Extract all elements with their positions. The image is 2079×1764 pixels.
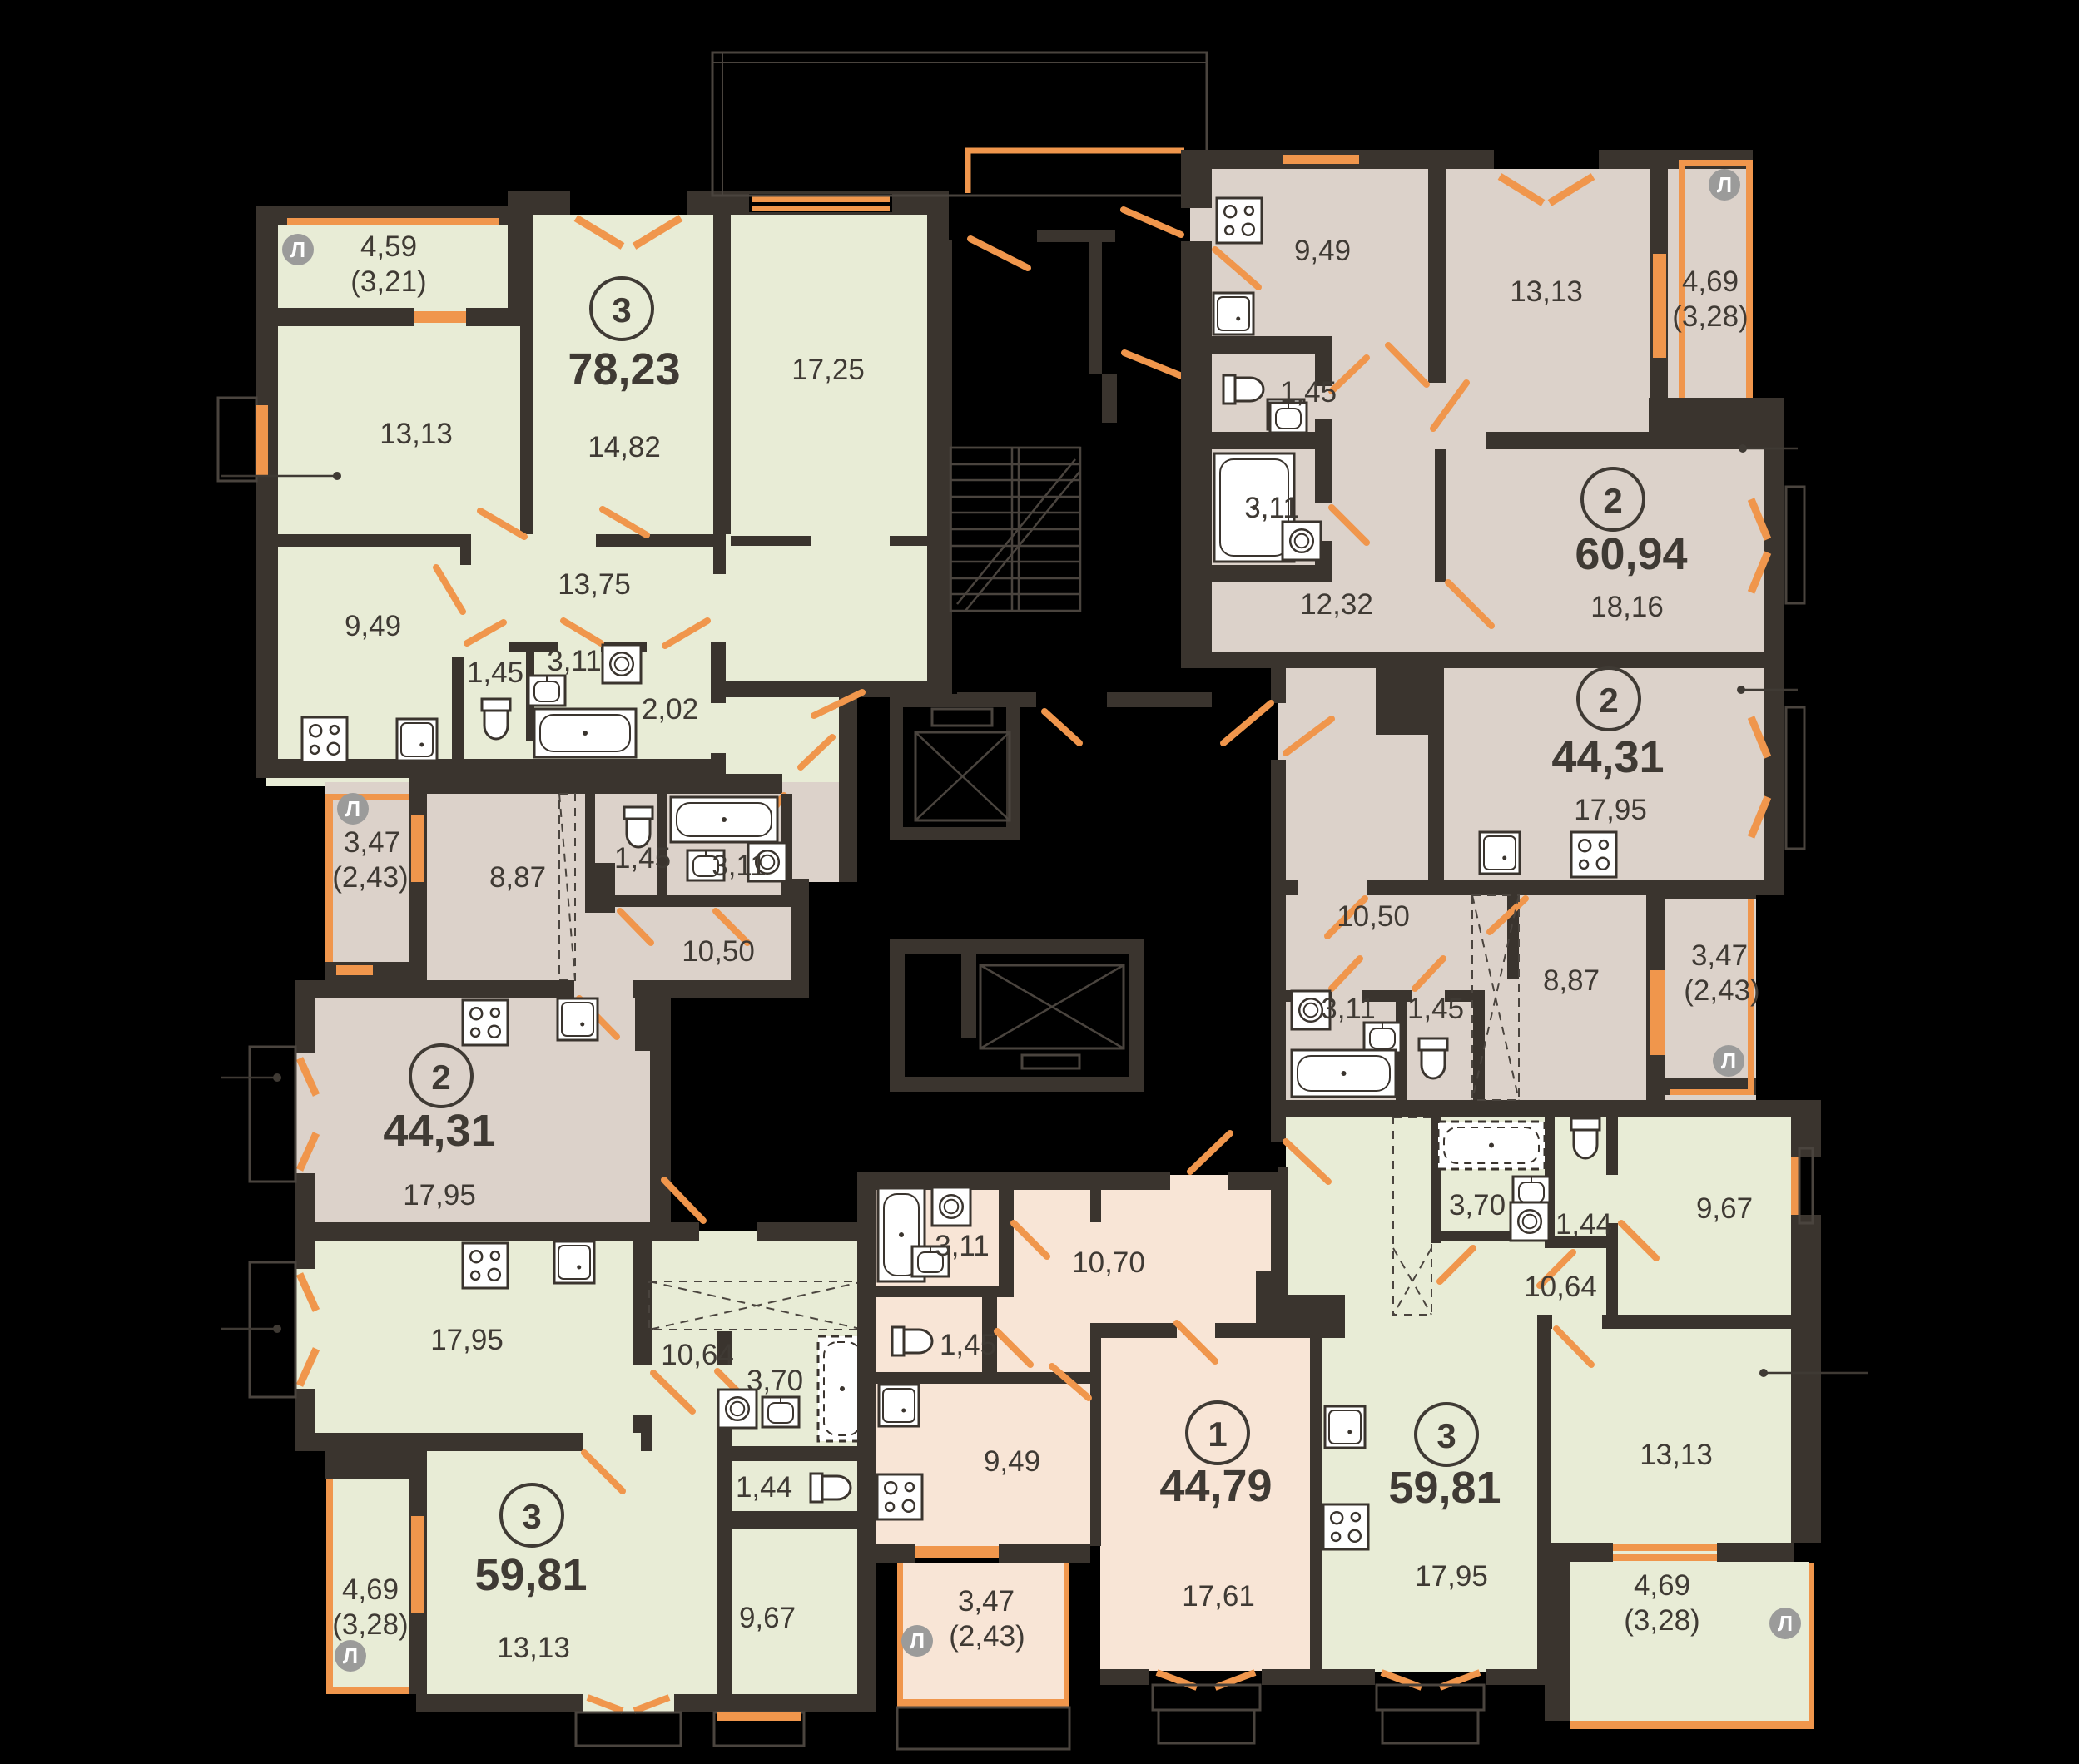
svg-text:3: 3: [612, 290, 631, 330]
svg-text:3,70: 3,70: [747, 1365, 803, 1397]
svg-text:(3,21): (3,21): [350, 265, 426, 298]
svg-text:4,69: 4,69: [1682, 265, 1739, 298]
svg-text:1,45: 1,45: [467, 657, 523, 689]
svg-text:Л: Л: [345, 796, 360, 821]
svg-text:2: 2: [1599, 681, 1618, 720]
svg-text:Л: Л: [290, 237, 305, 262]
svg-text:9,67: 9,67: [739, 1602, 796, 1634]
svg-text:2,02: 2,02: [642, 693, 698, 726]
svg-text:3,11: 3,11: [1321, 993, 1376, 1025]
svg-text:13,13: 13,13: [1510, 275, 1583, 308]
svg-text:3,11: 3,11: [1244, 492, 1299, 524]
svg-text:10,50: 10,50: [1337, 900, 1410, 933]
svg-text:17,61: 17,61: [1182, 1580, 1255, 1613]
svg-text:18,16: 18,16: [1590, 591, 1664, 623]
svg-text:17,95: 17,95: [403, 1179, 476, 1212]
svg-text:1: 1: [1208, 1415, 1227, 1454]
svg-text:3,11: 3,11: [547, 645, 602, 677]
svg-text:13,13: 13,13: [380, 418, 453, 450]
svg-text:59,81: 59,81: [1388, 1463, 1501, 1513]
svg-text:1,45: 1,45: [1280, 376, 1337, 409]
svg-text:1,44: 1,44: [1556, 1208, 1612, 1241]
svg-text:3,47: 3,47: [344, 826, 400, 859]
svg-text:3: 3: [1436, 1416, 1456, 1455]
svg-text:9,49: 9,49: [345, 610, 401, 642]
svg-text:14,82: 14,82: [588, 431, 661, 463]
svg-text:9,49: 9,49: [1294, 235, 1351, 267]
svg-text:3: 3: [522, 1497, 541, 1536]
svg-text:Л: Л: [1721, 1048, 1736, 1073]
svg-text:4,69: 4,69: [1634, 1569, 1690, 1602]
svg-text:1,45: 1,45: [614, 842, 671, 875]
svg-text:17,95: 17,95: [1415, 1560, 1488, 1593]
svg-text:44,31: 44,31: [1551, 732, 1664, 782]
svg-text:10,64: 10,64: [661, 1339, 734, 1371]
svg-text:(3,28): (3,28): [1672, 300, 1748, 333]
svg-text:(2,43): (2,43): [332, 861, 408, 894]
svg-text:Л: Л: [343, 1643, 358, 1668]
svg-text:3,11: 3,11: [712, 850, 767, 882]
svg-text:17,95: 17,95: [1574, 794, 1647, 826]
svg-text:3,47: 3,47: [958, 1585, 1015, 1618]
svg-text:13,75: 13,75: [558, 568, 631, 601]
svg-text:Л: Л: [1778, 1611, 1793, 1636]
svg-text:(3,28): (3,28): [332, 1608, 408, 1641]
svg-text:13,13: 13,13: [1640, 1439, 1713, 1471]
svg-text:(2,43): (2,43): [1684, 974, 1759, 1007]
svg-text:1,45: 1,45: [1407, 993, 1464, 1025]
svg-text:78,23: 78,23: [568, 344, 680, 394]
svg-text:1,44: 1,44: [736, 1471, 792, 1504]
svg-text:10,70: 10,70: [1072, 1246, 1145, 1279]
svg-text:8,87: 8,87: [1543, 964, 1600, 997]
svg-text:44,79: 44,79: [1159, 1461, 1272, 1511]
svg-text:59,81: 59,81: [474, 1550, 587, 1600]
svg-text:1,45: 1,45: [940, 1329, 996, 1361]
svg-text:3,47: 3,47: [1691, 939, 1748, 972]
svg-text:9,67: 9,67: [1696, 1192, 1753, 1225]
svg-text:17,95: 17,95: [430, 1324, 504, 1356]
svg-text:10,50: 10,50: [682, 935, 755, 968]
svg-text:(3,28): (3,28): [1624, 1604, 1699, 1637]
svg-text:(2,43): (2,43): [949, 1620, 1025, 1653]
svg-text:10,64: 10,64: [1524, 1271, 1597, 1303]
svg-text:12,32: 12,32: [1300, 588, 1373, 621]
svg-text:8,87: 8,87: [489, 861, 546, 894]
svg-text:17,25: 17,25: [791, 354, 865, 386]
svg-text:44,31: 44,31: [383, 1106, 495, 1156]
svg-text:13,13: 13,13: [497, 1632, 570, 1664]
svg-text:Л: Л: [1717, 172, 1732, 197]
svg-text:2: 2: [431, 1058, 450, 1097]
svg-text:2: 2: [1603, 481, 1622, 520]
svg-text:9,49: 9,49: [984, 1445, 1040, 1478]
svg-text:3,11: 3,11: [935, 1230, 990, 1262]
svg-text:60,94: 60,94: [1575, 529, 1687, 579]
svg-text:Л: Л: [910, 1628, 925, 1653]
svg-text:3,70: 3,70: [1449, 1189, 1506, 1221]
svg-text:4,59: 4,59: [360, 230, 417, 263]
svg-text:4,69: 4,69: [342, 1573, 399, 1606]
